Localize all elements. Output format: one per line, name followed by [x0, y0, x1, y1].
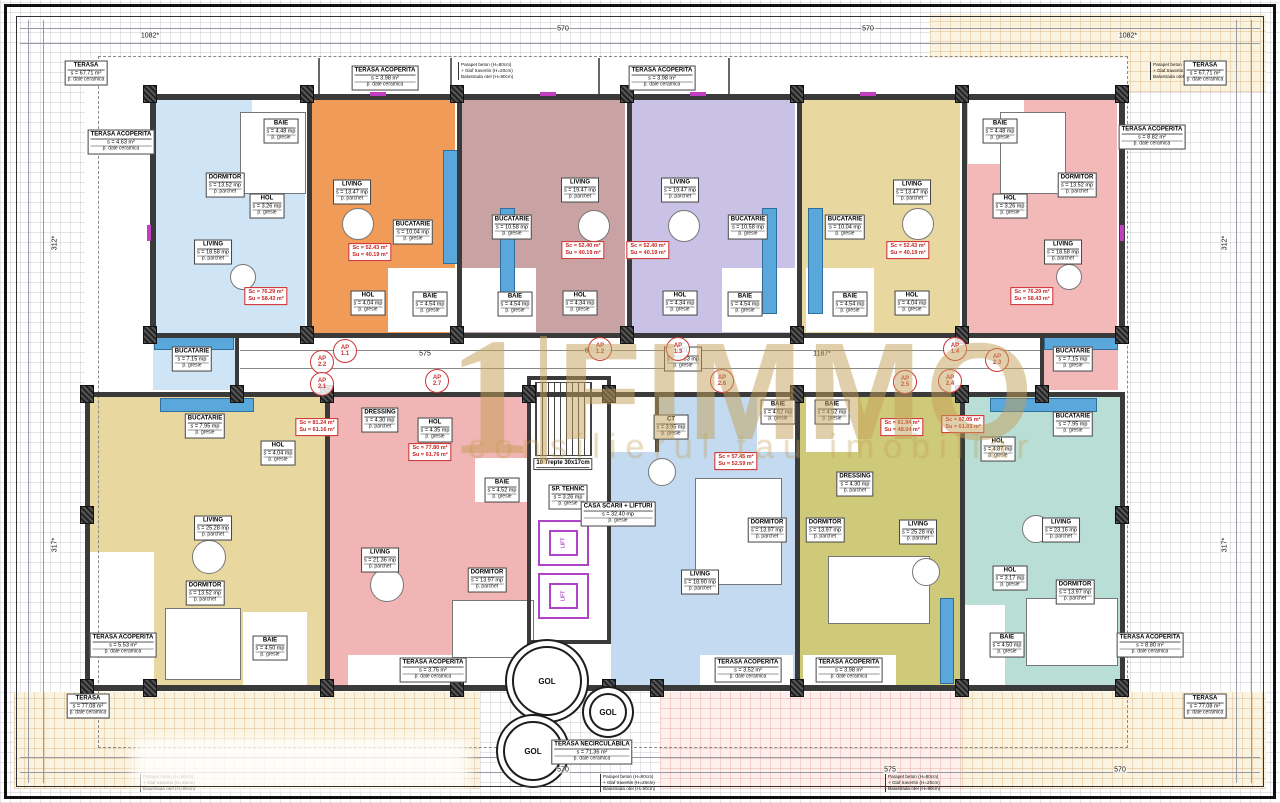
room-name: HOL	[898, 293, 927, 301]
structural-column	[790, 85, 804, 103]
room-name: TERASA ACOPERITA	[632, 68, 693, 76]
room-label-living: LIVINGs = 25.28 mpp. parchet	[194, 516, 232, 541]
void-label: GOL	[524, 747, 541, 756]
room-floor: p. parchet	[751, 535, 784, 541]
usable-area: Su = 52.59 m²	[718, 461, 753, 467]
room-name: TERASA ACOPERITA	[1120, 635, 1181, 643]
built-area: Sc = 52.40 m²	[630, 243, 665, 249]
elevator-label: LIFT	[561, 591, 567, 602]
structural-column	[1115, 679, 1129, 697]
apartment-marker-2.3[interactable]: AP2.3	[985, 348, 1009, 372]
room-name: DORMITOR	[471, 570, 504, 578]
terrace-label-terasa-acoperita: TERASA ACOPERITAs = 4.63 m²p. dale ceram…	[88, 130, 155, 155]
room-label-dressing: DRESSINGs = 4.30 mpp. parchet	[836, 472, 873, 497]
room-name: BUCATARIE	[188, 416, 222, 424]
room-label-living: LIVINGs = 25.28 mpp. parchet	[899, 520, 937, 545]
room-floor: p. gresie	[836, 309, 865, 315]
structural-column	[300, 85, 314, 103]
room-floor: p. parchet	[364, 425, 395, 431]
room-name: TERASA ACOPERITA	[718, 660, 779, 668]
room-label-baie: BAIEs = 4.52 mpp. gresie	[761, 400, 796, 425]
room-label-baie: BAIEs = 4.54 mpp. gresie	[728, 292, 763, 317]
terrace-label-terasa-acoperita: TERASA ACOPERITAs = 3.98 m²p. dale ceram…	[816, 658, 883, 683]
room-floor: p. parchet	[809, 535, 842, 541]
room-floor: p. parchet	[896, 197, 928, 203]
room-floor: p. dale ceramica	[70, 711, 107, 717]
window-marker	[860, 92, 876, 96]
room-name: LIVING	[197, 242, 229, 250]
room-floor: p. gresie	[267, 136, 296, 142]
room-name: TERASA NECIRCULABILA	[554, 742, 629, 750]
structural-column	[620, 326, 634, 344]
room-floor: p. dale ceramica	[1187, 78, 1224, 84]
wall	[797, 94, 802, 338]
room-name: HOL	[354, 293, 383, 301]
structural-column	[955, 679, 969, 697]
apartment-marker-2.1[interactable]: AP2.1	[310, 372, 334, 396]
structural-column	[790, 326, 804, 344]
room-label-dormitor: DORMITORs = 13.97 mpp. parchet	[468, 568, 507, 593]
room-name: LIVING	[336, 182, 368, 190]
wall	[150, 333, 1125, 338]
room-floor: p. dale ceramica	[403, 675, 464, 681]
room-label-hol: HOLs = 4.34 mpp. gresie	[563, 291, 598, 316]
parapet-note: Parapet beton (H=80cm)+ Glaf travertin (…	[600, 774, 655, 792]
structural-column	[602, 385, 616, 403]
terrace-label-terasa-acoperita: TERASA ACOPERITAs = 3.98 m²p. dale ceram…	[352, 66, 419, 91]
apartment-marker-1.3[interactable]: AP1.3	[666, 337, 690, 361]
room-floor: p. dale ceramica	[819, 675, 880, 681]
room-floor: p. parchet	[197, 533, 229, 539]
room-label-dormitor: DORMITORs = 13.52 mpp. parchet	[1058, 173, 1097, 198]
room-floor: p. gresie	[731, 232, 765, 238]
room-label-bucatarie: BUCATARIEs = 7.95 mpp. gresie	[1053, 412, 1093, 437]
apartment-marker-1.1[interactable]: AP1.1	[333, 339, 357, 363]
usable-area: Su = 40.19 m²	[890, 250, 925, 256]
room-floor: p. parchet	[209, 190, 242, 196]
room-floor: p. parchet	[364, 565, 396, 571]
bed	[165, 608, 241, 680]
room-label-living: LIVINGs = 23.16 mpp. parchet	[1042, 518, 1080, 543]
dimension-value: 1082*	[140, 33, 160, 40]
room-label-baie: BAIEs = 4.54 mpp. gresie	[833, 292, 868, 317]
built-area: Sc = 57.45 m²	[718, 454, 753, 460]
room-name: BAIE	[256, 638, 285, 646]
room-floor: p. parchet	[1059, 597, 1092, 603]
room-name: LIVING	[1047, 242, 1079, 250]
usable-area: Su = 48.04 m²	[884, 427, 919, 433]
terrace-label-terasa-acoperita: TERASA ACOPERITAs = 5.53 m²p. dale ceram…	[90, 633, 157, 658]
room-floor: p. dale ceramica	[554, 757, 629, 763]
room-floor: p. dale ceramica	[93, 650, 154, 656]
round-table	[370, 568, 404, 602]
wall	[527, 376, 611, 380]
room-label-living: LIVINGs = 19.47 mpp. parchet	[661, 178, 699, 203]
round-table	[668, 210, 700, 242]
room-name: BAIE	[836, 294, 865, 302]
wall	[457, 94, 462, 338]
structural-column	[650, 679, 664, 697]
void-circle: GOL	[512, 646, 582, 716]
wall	[527, 378, 531, 642]
dimension-line	[240, 350, 1040, 351]
room-label-bucatarie: BUCATARIEs = 10.58 mpp. gresie	[728, 215, 768, 240]
structural-column	[955, 85, 969, 103]
usable-area: Su = 58.43 m²	[1014, 296, 1049, 302]
structural-column	[80, 506, 94, 524]
elevator-2[interactable]: LIFT	[538, 573, 589, 619]
room-name: BAIE	[267, 121, 296, 129]
built-area: Sc = 52.40 m²	[565, 243, 600, 249]
room-name: LIVING	[902, 522, 934, 530]
room-name: DORMITOR	[189, 583, 222, 591]
built-area: Sc = 82.05 m²	[945, 417, 980, 423]
room-name: DORMITOR	[1061, 175, 1094, 183]
built-area: Sc = 52.43 m²	[352, 245, 387, 251]
marker-number: 1.4	[951, 349, 959, 355]
room-name: TERASA ACOPERITA	[91, 132, 152, 140]
room-floor: p. dale ceramica	[718, 675, 779, 681]
room-floor: p. gresie	[731, 309, 760, 315]
room-floor: p. parchet	[839, 489, 870, 495]
room-floor: p. gresie	[501, 309, 530, 315]
dimension-value: 570	[1113, 767, 1127, 774]
room-name: TERASA ACOPERITA	[1122, 127, 1183, 135]
room-name: 10 Trepte 30x17cm	[536, 460, 589, 468]
room-floor: p. dale ceramica	[1120, 650, 1181, 656]
window-marker	[690, 92, 706, 96]
structural-column	[1035, 385, 1049, 403]
room-label-dormitor: DORMITORs = 13.97 mpp. parchet	[748, 518, 787, 543]
structural-column	[790, 679, 804, 697]
room-label-bucatarie: BUCATARIEs = 7.15 mpp. gresie	[172, 347, 212, 372]
room-name: DRESSING	[839, 474, 870, 482]
room-name: TERASA ACOPERITA	[403, 660, 464, 668]
room-name: TERASA ACOPERITA	[355, 68, 416, 76]
structural-column	[143, 326, 157, 344]
room-floor: p. dale ceramica	[91, 147, 152, 153]
void-label: GOL	[538, 677, 555, 686]
terrace-label-terasa-acoperita: TERASA ACOPERITAs = 8.82 m²p. dale ceram…	[1119, 125, 1186, 150]
room-floor: p. gresie	[495, 232, 529, 238]
room-name: BAIE	[993, 635, 1022, 643]
structural-column	[80, 385, 94, 403]
dimension-value: 1082*	[1118, 33, 1138, 40]
room-floor: p. gresie	[996, 211, 1025, 217]
room-floor: p. gresie	[566, 308, 595, 314]
terrace-label-terasa-acoperita: TERASA ACOPERITAs = 3.98 m²p. dale ceram…	[629, 66, 696, 91]
apartment-marker-2.6[interactable]: AP2.6	[710, 369, 734, 393]
room-floor: p. parchet	[197, 257, 229, 263]
area-summary-ap-9: Sc = 57.45 m²Su = 52.59 m²	[714, 452, 757, 470]
core-label-casa-scarii-lifturi: CASA SCARII + LIFTURIs = 32.40 mpp. gres…	[581, 502, 656, 527]
room-floor: p. parchet	[1045, 535, 1077, 541]
room-floor: p. dale ceramica	[355, 83, 416, 89]
marker-number: 1.2	[596, 349, 604, 355]
room-name: DRESSING	[364, 410, 395, 418]
room-label-hol: HOLs = 4.04 mpp. gresie	[895, 291, 930, 316]
room-name: LIVING	[364, 550, 396, 558]
room-floor: p. gresie	[188, 431, 222, 437]
round-table	[902, 208, 934, 240]
room-name: LIVING	[684, 572, 716, 580]
room-name: HOL	[666, 293, 695, 301]
room-name: BAIE	[764, 402, 793, 410]
void-label: GOL	[599, 708, 616, 717]
room-floor: p. gresie	[818, 417, 847, 423]
room-floor: p. gresie	[253, 211, 282, 217]
structural-column	[320, 679, 334, 697]
room-floor: p. dale ceramica	[1122, 142, 1183, 148]
room-floor: p. gresie	[264, 458, 293, 464]
area-summary-ap-8: Sc = 77.80 m²Su = 61.76 m²	[408, 443, 451, 461]
room-name: LIVING	[1045, 520, 1077, 528]
area-summary-ap-2: Sc = 52.43 m²Su = 40.19 m²	[348, 243, 391, 261]
dimension-value: 570	[556, 767, 570, 774]
room-label-baie: BAIEs = 4.48 mpp. gresie	[983, 119, 1018, 144]
wall	[627, 94, 632, 338]
room-label-bucatarie: BUCATARIEs = 10.58 mpp. gresie	[492, 215, 532, 240]
wall	[150, 94, 1125, 100]
room-label-baie: BAIEs = 4.48 mpp. gresie	[264, 119, 299, 144]
apartment-marker-2.4[interactable]: AP2.4	[938, 369, 962, 393]
room-floor: p. gresie	[828, 232, 862, 238]
room-label-living: LIVINGs = 18.90 mpp. parchet	[681, 570, 719, 595]
structural-column	[300, 326, 314, 344]
dimension-chain	[1251, 20, 1252, 783]
window-marker	[147, 225, 151, 241]
room-name: DORMITOR	[209, 175, 242, 183]
dimension-value: 312*	[1222, 235, 1229, 251]
marker-number: 2.3	[993, 360, 1001, 366]
dimension-value: 1187*	[812, 351, 832, 358]
room-label-bucatarie: BUCATARIEs = 10.04 mpp. gresie	[393, 220, 433, 245]
room-name: HOL	[421, 420, 450, 428]
room-name: LIVING	[664, 180, 696, 188]
structural-column	[522, 385, 536, 403]
built-area: Sc = 81.24 m²	[299, 420, 334, 426]
room-label-hol: HOLs = 4.35 mpp. gresie	[418, 418, 453, 443]
round-table	[578, 210, 610, 242]
watermark-white-smudge	[133, 738, 468, 790]
terrace-label-terasa-acoperita: TERASA ACOPERITAs = 8.80 m²p. dale ceram…	[1117, 633, 1184, 658]
room-label-living: LIVINGs = 13.47 mpp. parchet	[893, 180, 931, 205]
structural-column	[1115, 506, 1129, 524]
room-floor: p. gresie	[1056, 364, 1090, 370]
bed	[1026, 598, 1118, 666]
structural-column	[143, 679, 157, 697]
room-label-hol: HOLs = 3.26 mpp. gresie	[993, 194, 1028, 219]
room-name: LIVING	[197, 518, 229, 526]
room-floor: p. parchet	[902, 537, 934, 543]
room-name: BAIE	[501, 294, 530, 302]
room-name: TERASA ACOPERITA	[93, 635, 154, 643]
room-floor: p. gresie	[667, 364, 699, 370]
room-name: TERASA	[68, 63, 105, 71]
usable-area: Su = 40.19 m²	[565, 250, 600, 256]
room-label-living: LIVINGs = 18.58 mpp. parchet	[194, 240, 232, 265]
room-name: HOL	[566, 293, 595, 301]
terrace-label-terasa-acoperita: TERASA ACOPERITAs = 3.75 m²p. dale ceram…	[400, 658, 467, 683]
room-floor: p. gresie	[421, 435, 450, 441]
room-floor: p. parchet	[664, 195, 696, 201]
usable-area: Su = 61.76 m²	[412, 452, 447, 458]
room-label-bucatarie: BUCATARIEs = 7.95 mpp. gresie	[185, 414, 225, 439]
area-summary-ap-10: Sc = 61.94 m²Su = 48.04 m²	[880, 418, 923, 436]
room-name: CASA SCARII + LIFTURI	[584, 504, 653, 512]
elevator-1[interactable]: LIFT	[538, 520, 589, 566]
room-floor: p. parchet	[189, 598, 222, 604]
area-summary-ap-11: Sc = 82.05 m²Su = 61.03 m²	[941, 415, 984, 433]
room-name: BAIE	[416, 294, 445, 302]
room-floor: p. gresie	[1056, 429, 1090, 435]
area-summary-ap-4: Sc = 52.40 m²Su = 40.19 m²	[626, 241, 669, 259]
core-label-10-trepte-30x17cm: 10 Trepte 30x17cm	[533, 458, 592, 470]
usable-area: Su = 58.43 m²	[248, 296, 283, 302]
round-table	[1056, 264, 1082, 290]
dimension-value: 575	[418, 351, 432, 358]
apartment-marker-1.2[interactable]: AP1.2	[588, 337, 612, 361]
terrace-label-terasa-necirculabila: TERASA NECIRCULABILAs = 71.36 m²p. dale …	[551, 740, 632, 765]
marker-number: 2.2	[318, 362, 326, 368]
terrace-wall	[598, 58, 600, 96]
structural-column	[450, 85, 464, 103]
room-name: HOL	[253, 196, 282, 204]
room-label-hol: HOLs = 3.17 mpp. gresie	[993, 566, 1028, 591]
room-floor: p. gresie	[993, 650, 1022, 656]
room-name: BUCATARIE	[828, 217, 862, 225]
dimension-chain	[28, 20, 29, 783]
room-name: BUCATARIE	[731, 217, 765, 225]
room-name: BUCATARIE	[396, 222, 430, 230]
apartment-marker-2.2[interactable]: AP2.2	[310, 350, 334, 374]
dimension-value: 575	[883, 767, 897, 774]
round-table	[192, 540, 226, 574]
dimension-value: 570	[556, 26, 570, 33]
floor-plan-canvas: LIFT LIFT DORMITORs = 13.52 mpp. parchet…	[0, 0, 1280, 803]
room-label-dormitor: DORMITORs = 13.52 mpp. parchet	[206, 173, 245, 198]
room-label-baie: BAIEs = 4.54 mpp. gresie	[413, 292, 448, 317]
room-floor: p. gresie	[657, 432, 686, 438]
structural-column	[230, 385, 244, 403]
room-floor: p. gresie	[488, 495, 517, 501]
room-label-dressing: DRESSINGs = 4.30 mpp. parchet	[361, 408, 398, 433]
built-area: Sc = 77.80 m²	[412, 445, 447, 451]
room-floor: p. gresie	[898, 308, 927, 314]
terrace-label-terasa: TERASAs = 77.08 m²p. dale ceramica	[1184, 694, 1227, 719]
terrace-label-terasa: TERASAs = 67.71 m²p. dale ceramica	[1184, 61, 1227, 86]
room-name: HOL	[996, 568, 1025, 576]
wall	[307, 94, 312, 338]
apartment-marker-1.4[interactable]: AP1.4	[943, 337, 967, 361]
elevator-label: LIFT	[561, 538, 567, 549]
usable-area: Su = 61.03 m²	[945, 424, 980, 430]
room-label-baie: BAIEs = 4.52 mpp. gresie	[485, 478, 520, 503]
usable-area: Su = 40.19 m²	[630, 250, 665, 256]
dimension-value: 317*	[52, 537, 59, 553]
built-area: Sc = 52.43 m²	[890, 243, 925, 249]
room-floor: p. parchet	[336, 197, 368, 203]
room-floor: p. parchet	[1061, 190, 1094, 196]
apartment-marker-2.5[interactable]: AP2.5	[893, 370, 917, 394]
room-label-living: LIVINGs = 18.58 mpp. parchet	[1044, 240, 1082, 265]
room-name: BAIE	[986, 121, 1015, 129]
room-floor: p. gresie	[354, 308, 383, 314]
room-floor: p. gresie	[175, 364, 209, 370]
room-floor: p. parchet	[684, 587, 716, 593]
room-label-dormitor: DORMITORs = 13.97 mpp. parchet	[806, 518, 845, 543]
kitchen-counter	[940, 598, 954, 684]
room-name: BAIE	[731, 294, 760, 302]
dimension-value: 317*	[1222, 537, 1229, 553]
window-marker	[1120, 225, 1124, 241]
room-name: BUCATARIE	[495, 217, 529, 225]
room-floor: p. gresie	[256, 653, 285, 659]
room-label-bucatarie: BUCATARIEs = 10.04 mpp. gresie	[825, 215, 865, 240]
room-label-ct: CTs = 3.95 mpp. gresie	[654, 415, 689, 440]
structural-column	[1115, 326, 1129, 344]
marker-number: 1.1	[341, 351, 349, 357]
terrace-label-terasa: TERASAs = 67.71 m²p. dale ceramica	[65, 61, 108, 86]
marker-number: 2.5	[901, 382, 909, 388]
kitchen-counter	[443, 150, 458, 264]
round-table	[342, 208, 374, 240]
parapet-note: Parapet beton (H=80cm)+ Glaf travertin (…	[458, 62, 513, 80]
room-name: LIVING	[896, 182, 928, 190]
built-area: Sc = 61.94 m²	[884, 420, 919, 426]
room-label-hol: HOLs = 4.34 mpp. gresie	[663, 291, 698, 316]
room-floor: p. gresie	[552, 502, 585, 508]
structural-column	[143, 85, 157, 103]
room-name: TERASA	[1187, 696, 1224, 704]
room-floor: p. gresie	[416, 309, 445, 315]
dimension-value: 312*	[52, 235, 59, 251]
room-name: DORMITOR	[751, 520, 784, 528]
terrace-wall	[728, 58, 730, 96]
dimension-line	[240, 368, 1040, 369]
room-label-living: LIVINGs = 21.36 mpp. parchet	[361, 548, 399, 573]
area-summary-ap-7: Sc = 81.24 m²Su = 61.16 m²	[295, 418, 338, 436]
room-name: SP. TEHNIC	[552, 487, 585, 495]
wall	[795, 392, 800, 690]
area-summary-ap-3: Sc = 52.40 m²Su = 40.19 m²	[561, 241, 604, 259]
structural-column	[1115, 85, 1129, 103]
room-name: HOL	[996, 196, 1025, 204]
room-floor: p. gresie	[666, 308, 695, 314]
room-floor: p. dale ceramica	[632, 83, 693, 89]
room-label-living: LIVINGs = 19.47 mpp. parchet	[561, 178, 599, 203]
terrace-label-terasa-acoperita: TERASA ACOPERITAs = 3.52 m²p. dale ceram…	[715, 658, 782, 683]
room-floor: p. parchet	[471, 585, 504, 591]
kitchen-counter	[808, 208, 823, 314]
room-name: BAIE	[488, 480, 517, 488]
room-label-hol: HOLs = 4.04 mpp. gresie	[351, 291, 386, 316]
marker-number: 1.3	[674, 349, 682, 355]
room-label-hol: HOLs = 4.87 mpp. gresie	[981, 437, 1016, 462]
area-summary-ap-1: Sc = 76.29 m²Su = 58.43 m²	[244, 287, 287, 305]
room-name: BAIE	[818, 402, 847, 410]
area-summary-ap-5: Sc = 52.43 m²Su = 40.19 m²	[886, 241, 929, 259]
room-label-dormitor: DORMITORs = 13.52 mpp. parchet	[186, 581, 225, 606]
parapet-note: Parapet beton (H=80cm)+ Glaf travertin (…	[885, 774, 940, 792]
apartment-marker-2.7[interactable]: AP2.7	[425, 369, 449, 393]
room-name: TERASA	[1187, 63, 1224, 71]
round-table	[648, 458, 676, 486]
dimension-chain	[20, 43, 1260, 44]
marker-number: 2.1	[318, 384, 326, 390]
room-name: CT	[657, 417, 686, 425]
marker-number: 2.7	[433, 381, 441, 387]
